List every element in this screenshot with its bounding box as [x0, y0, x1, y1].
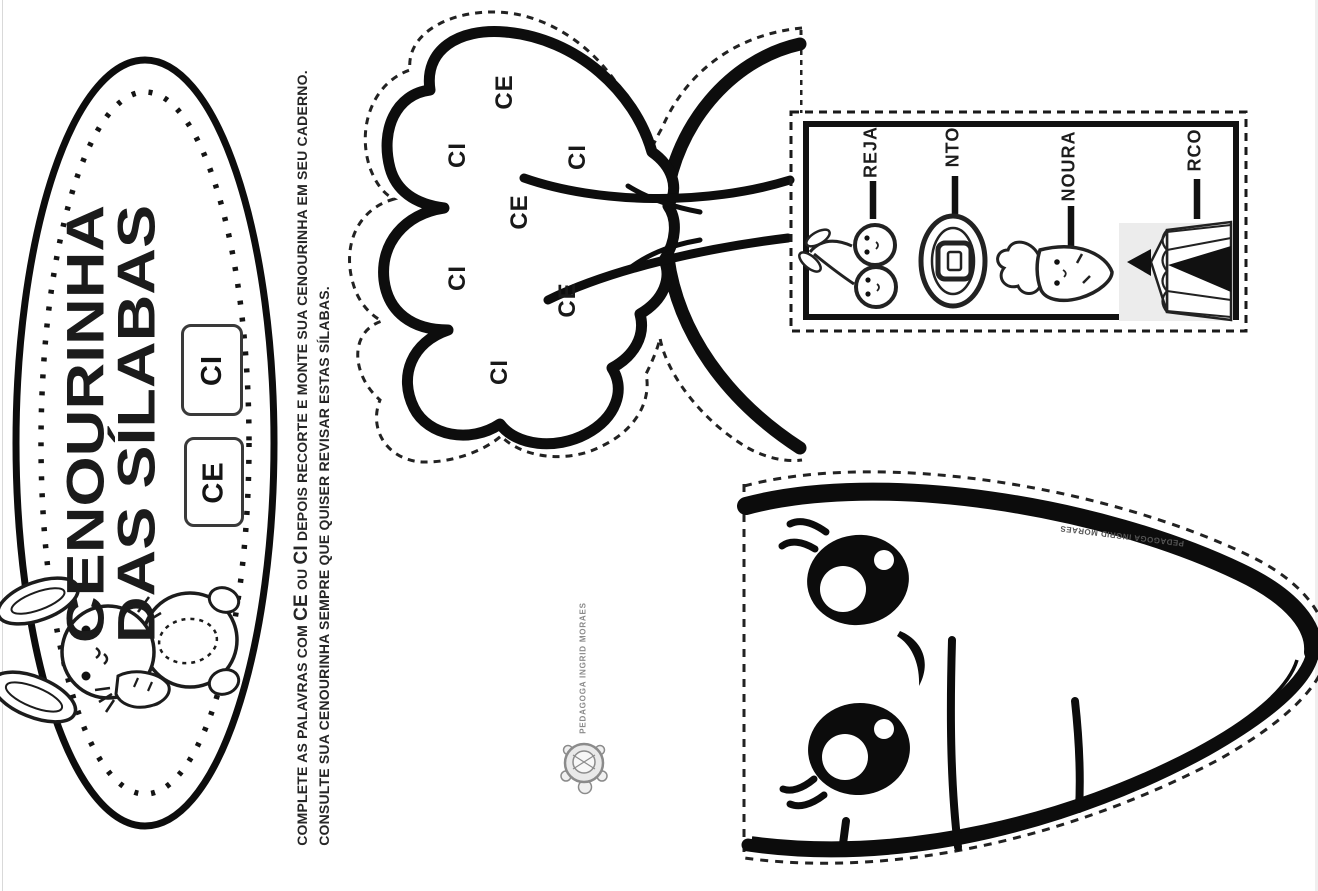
leaf-syllable-5: CI: [444, 265, 472, 291]
instructions-ci: CI: [291, 545, 312, 564]
badge-syllable-ce: CE: [197, 461, 230, 503]
badge-syllable-box-ci: CI: [181, 324, 243, 416]
belt-icon: [921, 216, 985, 306]
turtle-icon: [561, 744, 607, 794]
carrot-body: [744, 472, 1318, 863]
leaf-syllable-2: CI: [444, 142, 472, 168]
carrot-top-outline: [350, 12, 802, 462]
logo-text: PEDAGOGA INGRID MORAES: [579, 602, 588, 734]
instructions-line-1: COMPLETE AS PALAVRAS COM CE OU CI DEPOIS…: [291, 70, 313, 846]
title-line-2: DAS SÍLABAS: [112, 205, 163, 643]
badge-syllable-ci: CI: [196, 355, 229, 386]
leaf-syllable-4: CE: [506, 194, 534, 229]
title-line-1: CENOURINHA: [61, 205, 112, 643]
circus-tent-icon: [1119, 222, 1233, 321]
word-ending-nto: NTO: [943, 127, 964, 168]
word-ending-rco: RCO: [1185, 129, 1206, 172]
word-ending-noura: NOURA: [1059, 131, 1080, 202]
worksheet-title: CENOURINHA DAS SÍLABAS: [61, 205, 164, 643]
leaf-syllable-1: CE: [491, 74, 519, 109]
leaf-syllable-6: CE: [554, 282, 582, 317]
leaf-syllable-7: CI: [486, 359, 514, 385]
leaf-syllable-3: CI: [564, 144, 592, 170]
instructions-line-2: CONSULTE SUA CENOURINHA SEMPRE QUE QUISE…: [313, 70, 335, 846]
word-ending-reja: REJA: [861, 126, 882, 178]
instructions: COMPLETE AS PALAVRAS COM CE OU CI DEPOIS…: [291, 70, 335, 846]
badge-syllable-box-ce: CE: [184, 437, 244, 527]
instructions-ce: CE: [291, 594, 312, 621]
worksheet-page: CENOURINHA DAS SÍLABAS CE CI COMPLETE AS…: [0, 0, 1318, 891]
